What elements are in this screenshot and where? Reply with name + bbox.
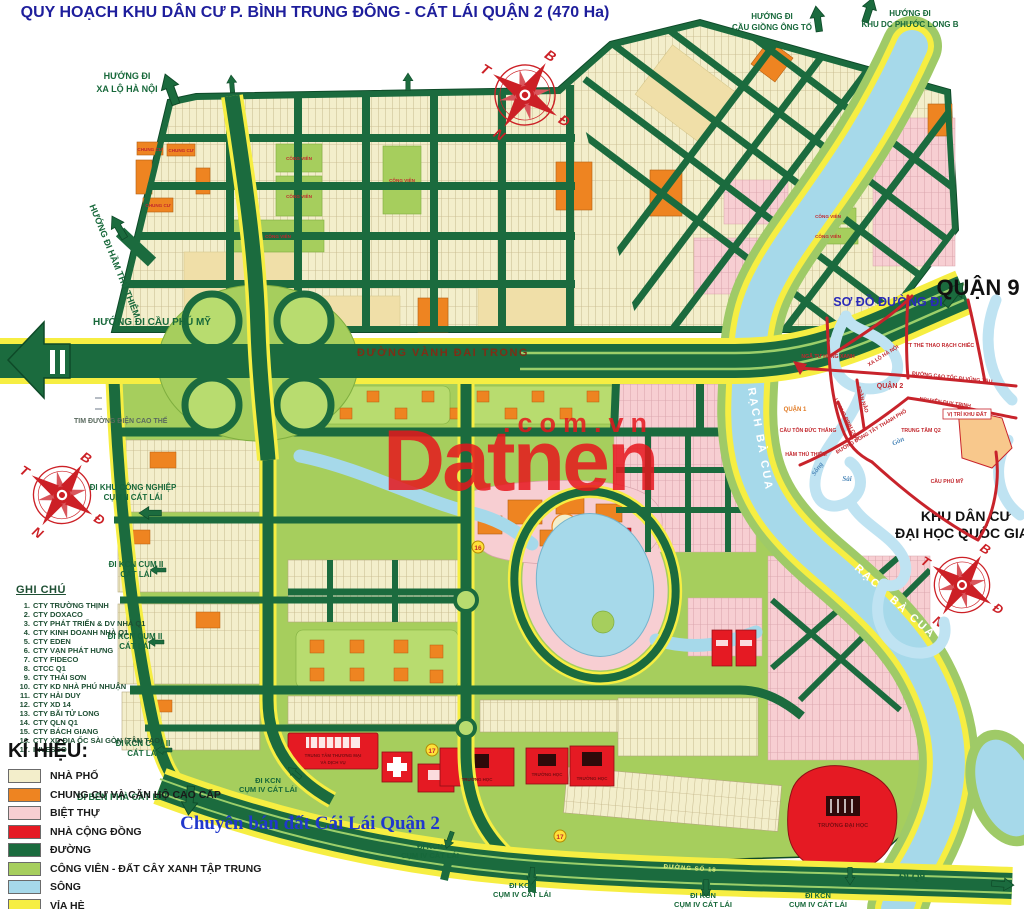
inset-trung-tam-q2: TRUNG TÂM Q2 xyxy=(901,427,941,434)
park-label: CÔNG VIÊN xyxy=(389,176,415,183)
inset-sai: Sài xyxy=(842,475,851,483)
footer-sales-text: Chuyên bán đất Cái Lái Quận 2 xyxy=(150,813,470,835)
legend-heading: KÍ HIỆU: xyxy=(8,740,268,763)
inset-quan-2: QUẬN 2 xyxy=(877,381,904,390)
dir-kcn2s-a-line1: ĐI KCN CỤM II xyxy=(109,560,164,569)
dir-xa-lo-ha-noi-line1: HƯỚNG ĐI xyxy=(104,70,151,81)
legend-swatch xyxy=(8,806,41,820)
note-item: 12.CTY XD 14 xyxy=(16,700,206,709)
legend-label: ĐƯỜNG xyxy=(50,844,91,856)
dir-phuoc-long-b-line2: KHU DC PHƯỚC LONG B xyxy=(861,20,958,29)
park-label: CÔNG VIÊN xyxy=(815,212,841,219)
park-label: CÔNG VIÊN xyxy=(815,232,841,239)
apartment-label: CHUNG CƯ xyxy=(145,203,170,208)
marker-label: 16 xyxy=(474,545,482,552)
note-item: 13.CTY BÃI TỬ LONG xyxy=(16,709,206,718)
note-item: 10.CTY KD NHÀ PHÚ NHUẬN xyxy=(16,682,206,691)
notes-list: 1.CTY TRƯỜNG THỊNH2.CTY DOXACO3.CTY PHÁT… xyxy=(16,601,206,754)
inset-nguyen-duy-trinh: NGUYỄN DUY TRINH xyxy=(919,395,972,409)
marker-label: 17 xyxy=(556,834,564,841)
apartment-label: CHUNG CƯ xyxy=(137,147,162,152)
school-label: TRƯỜNG HỌC xyxy=(532,772,564,777)
khu-dai-hoc-line2: ĐẠI HỌC QUỐC GIA xyxy=(895,524,1024,541)
legend-list: NHÀ PHỐCHUNG CƯ VÀ CĂN HỘ CAO CẤPBIỆT TH… xyxy=(8,770,268,909)
dir-giong-ong-to-line2: CẦU GIỒNG ÔNG TỐ xyxy=(732,22,812,32)
inset-nga-tu: NGÃ TƯ HÀNG XANH xyxy=(801,353,855,360)
inset-cau-ton-duc-thang: CẦU TÔN ĐỨC THẮNG xyxy=(780,426,837,434)
apartment-label: CHUNG CƯ xyxy=(168,148,193,153)
note-item: 1.CTY TRƯỜNG THỊNH xyxy=(16,601,206,610)
note-item: 9.CTY THÁI SƠN xyxy=(16,673,206,682)
legend-swatch xyxy=(8,862,41,876)
legend-swatch xyxy=(8,843,41,857)
map-stage: B N Đ T xyxy=(0,0,1024,909)
legend-swatch xyxy=(8,825,41,839)
inset-quan-1: QUẬN 1 xyxy=(784,406,807,413)
legend-label: VỈA HÈ xyxy=(50,900,85,909)
dir-kcn4-e-line2: CỤM IV CÁT LÁI xyxy=(789,900,847,909)
legend-swatch xyxy=(8,880,41,894)
road-vanh-dai-trong: ĐƯỜNG VÀNH ĐAI TRONG xyxy=(357,346,529,359)
dir-kcn4-b-line1: ĐI KCN xyxy=(417,842,443,851)
note-item: 6.CTY VẠN PHÁT HƯNG xyxy=(16,646,206,655)
inset-vi-tri-khu-dat: VỊ TRÍ KHU ĐẤT xyxy=(947,410,987,418)
school-label: TRƯỜNG HỌC xyxy=(577,776,609,781)
legend-item: SÔNG xyxy=(8,881,268,893)
note-item: 5.CTY EDEN xyxy=(16,637,206,646)
dir-kcn2-line2: CỤM II CÁT LÁI xyxy=(104,493,163,502)
legend-swatch xyxy=(8,899,41,909)
note-item: 11.CTY HẢI DUY xyxy=(16,691,206,700)
inset-cao-toc: ĐƯỜNG CAO TỐC ĐI VŨNG TÀU xyxy=(912,369,993,385)
legend-label: CHUNG CƯ VÀ CĂN HỘ CAO CẤP xyxy=(50,789,221,801)
note-item: 3.CTY PHÁT TRIỂN & DV NHÀ Q1 xyxy=(16,619,206,628)
dir-kcn4-c-line1: ĐI KCN xyxy=(509,881,535,890)
notes-heading: GHI CHÚ xyxy=(16,584,206,596)
legend-item: CHUNG CƯ VÀ CĂN HỘ CAO CẤP xyxy=(8,789,268,801)
mall-label-line1: TRUNG TÂM THƯƠNG MẠI xyxy=(305,753,362,758)
university-label: TRƯỜNG ĐẠI HỌC xyxy=(818,821,868,829)
park-label: CÔNG VIÊN xyxy=(286,192,312,199)
legend-item: NHÀ PHỐ xyxy=(8,770,268,782)
inset-ham-thu-thiem: HẦM THỦ THIÊM xyxy=(785,450,827,458)
legend-label: NHÀ PHỐ xyxy=(50,770,98,782)
inset-cau-phu-my: CẦU PHÚ MỸ xyxy=(931,478,964,485)
legend-swatch xyxy=(8,769,41,783)
inset-title: SƠ ĐỒ ĐƯỜNG ĐI xyxy=(833,294,942,309)
mall-label-line2: VÀ DỊCH VỤ xyxy=(320,760,345,765)
dir-xa-lo-ha-noi-line2: XA LỘ HÀ NỘI xyxy=(96,83,157,94)
dir-phuoc-long-b-line1: HƯỚNG ĐI xyxy=(889,9,930,18)
dir-kcn2-line1: ĐI KHU CÔNG NGHIỆP xyxy=(90,483,177,492)
note-item: 7.CTY FIDECO xyxy=(16,655,206,664)
dir-q9: ĐI Q9 xyxy=(899,872,926,883)
marker-label: 17 xyxy=(428,748,436,755)
legend-label: BIỆT THỰ xyxy=(50,807,100,819)
dir-cau-phu-my: HƯỚNG ĐI CẦU PHÚ MỸ xyxy=(93,315,211,328)
map-title: QUY HOẠCH KHU DÂN CƯ P. BÌNH TRUNG ĐÔNG … xyxy=(10,4,620,22)
legend-item: CÔNG VIÊN - ĐẤT CÂY XANH TẬP TRUNG xyxy=(8,863,268,875)
park-label: CÔNG VIÊN xyxy=(265,232,291,239)
notes-panel: GHI CHÚ 1.CTY TRƯỜNG THỊNH2.CTY DOXACO3.… xyxy=(16,584,206,754)
dir-kcn4-e-line1: ĐI KCN xyxy=(805,891,831,900)
note-item: 15.CTY BÁCH GIANG xyxy=(16,727,206,736)
legend-label: SÔNG xyxy=(50,881,81,893)
legend-label: NHÀ CỘNG ĐỒNG xyxy=(50,826,142,838)
inset-tt-the-thao: TT THỂ THAO RẠCH CHIẾC xyxy=(906,342,975,349)
dir-kcn4-d-line2: CỤM IV CÁT LÁI xyxy=(674,900,732,909)
dir-kcn4-b-line2: CỤM IV CÁT LÁI xyxy=(401,851,459,860)
dir-giong-ong-to-line1: HƯỚNG ĐI xyxy=(751,12,792,21)
university-block xyxy=(788,766,897,872)
school-label: TRƯỜNG HỌC xyxy=(462,777,494,782)
note-item: 4.CTY KINH DOANH NHÀ Q1 xyxy=(16,628,206,637)
cau-phu-my-arrow xyxy=(8,322,70,398)
park-label: CÔNG VIÊN xyxy=(286,154,312,161)
dir-kcn4-c-line2: CỤM IV CÁT LÁI xyxy=(493,890,551,899)
note-item: 14.CTY QLN Q1 xyxy=(16,718,206,727)
inset-gon: Gòn xyxy=(891,435,906,448)
note-item: 2.CTY DOXACO xyxy=(16,610,206,619)
legend-label: CÔNG VIÊN - ĐẤT CÂY XANH TẬP TRUNG xyxy=(50,863,261,875)
dir-kcn4-d-line1: ĐI KCN xyxy=(690,891,716,900)
legend-item: ĐƯỜNG xyxy=(8,844,268,856)
quan-9-label: QUẬN 9 xyxy=(936,275,1019,300)
note-item: 8.CTCC Q1 xyxy=(16,664,206,673)
legend-swatch xyxy=(8,788,41,802)
dir-kcn2s-a-line2: CÁT LÁI xyxy=(120,570,152,579)
legend-item: VỈA HÈ xyxy=(8,900,268,909)
khu-dai-hoc-line1: KHU DÂN CƯ xyxy=(921,507,1012,524)
